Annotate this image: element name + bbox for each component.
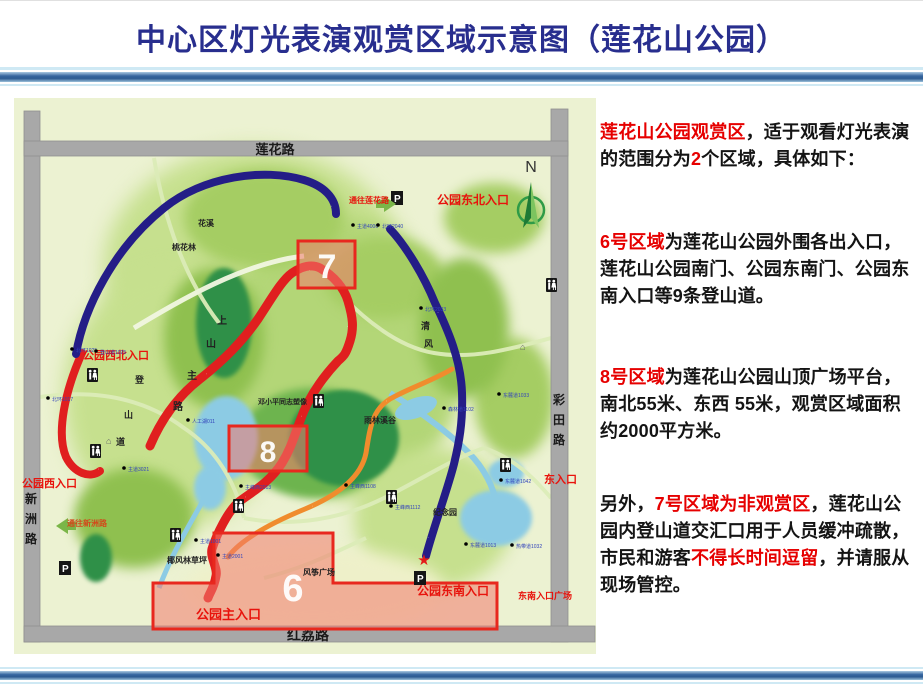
svg-text:人工湖011: 人工湖011 <box>192 418 215 425</box>
to-lianhua-road-label: 通往莲花路 <box>349 195 390 205</box>
coconut-lawn-label: 椰风林草坪 <box>167 555 207 565</box>
svg-text:主道2001: 主道2001 <box>222 553 243 560</box>
road-lianhua <box>24 141 568 156</box>
pavilion-icon: ⌂ <box>520 342 525 352</box>
zone-7-label: 7 <box>318 248 337 286</box>
svg-text:主: 主 <box>187 369 197 382</box>
restroom-icon <box>233 499 244 513</box>
paragraph-overview: 莲花山公园观赏区，适于观看灯光表演的范围分为2个区域，具体如下： <box>600 119 916 173</box>
parking-icon: P <box>59 561 71 575</box>
svg-text:路: 路 <box>25 531 38 546</box>
svg-text:主峰西1112: 主峰西1112 <box>395 504 421 511</box>
huaxi-label: 花溪 <box>198 218 215 228</box>
svg-text:彩: 彩 <box>552 392 565 407</box>
pavilion-icon: ⌂ <box>106 436 111 446</box>
svg-text:北环1017: 北环1017 <box>52 396 73 403</box>
svg-text:主道3021: 主道3021 <box>128 466 149 473</box>
restroom-icon <box>386 490 397 504</box>
paragraph-zone-8: 8号区域为莲花山公园山顶广场平台，南北55米、东西 55米，观赏区域面积约200… <box>600 364 916 445</box>
divider-bottom-light2 <box>0 682 923 684</box>
road-xinzhou <box>24 111 40 642</box>
deng-statue-label: 邓小平同志塑像 <box>258 397 308 406</box>
svg-text:主道1001: 主道1001 <box>200 538 221 545</box>
zone-8-label: 8 <box>260 436 277 469</box>
divider-bottom-light <box>0 667 923 669</box>
restroom-icon <box>313 394 324 408</box>
highlight-zone-7-non-viewing: 7号区域为非观赏区 <box>655 494 811 514</box>
svg-text:主道4006: 主道4006 <box>357 223 378 230</box>
svg-text:东麓道1042: 东麓道1042 <box>505 478 531 485</box>
memorial-garden-label: 纪念园 <box>433 507 457 517</box>
entrance-southeast-plaza-label: 东南入口广场 <box>518 590 572 601</box>
restroom-icon <box>90 444 101 458</box>
page-title: 中心区灯光表演观赏区域示意图（莲花山公园） <box>0 15 923 59</box>
highlight-zone-count: 2 <box>691 149 701 169</box>
svg-text:田: 田 <box>553 413 565 427</box>
svg-text:P: P <box>62 564 69 575</box>
svg-text:山: 山 <box>206 337 216 350</box>
explanation-panel: 莲花山公园观赏区，适于观看灯光表演的范围分为2个区域，具体如下： 6号区域为莲花… <box>600 119 916 599</box>
svg-text:登山道1025: 登山道1025 <box>100 349 126 356</box>
highlight-zone-6: 6号区域 <box>600 232 665 252</box>
star-icon: ★ <box>417 552 430 569</box>
highlight-park-viewing-area: 莲花山公园观赏区 <box>600 122 746 142</box>
svg-text:路: 路 <box>553 432 566 447</box>
slide: 中心区灯光表演观赏区域示意图（莲花山公园） <box>0 0 923 700</box>
paragraph-zone-7: 另外，7号区域为非观赏区，莲花山公园内登山道交汇口用于人员缓冲疏散，市民和游客不… <box>600 491 916 599</box>
taohualin-label: 桃花林 <box>172 242 196 252</box>
restroom-icon <box>546 278 557 292</box>
divider-bottom-band <box>0 671 923 680</box>
svg-text:风: 风 <box>424 339 433 349</box>
svg-text:洲: 洲 <box>25 512 37 526</box>
entrance-east-label: 东入口 <box>544 472 577 486</box>
svg-text:清: 清 <box>421 320 430 331</box>
road-caitian <box>551 109 568 642</box>
svg-text:主峰西2013: 主峰西2013 <box>245 484 271 491</box>
svg-text:东麓道1033: 东麓道1033 <box>503 392 529 399</box>
divider-top-band <box>0 72 923 82</box>
restroom-icon <box>500 458 511 472</box>
divider-top-light2 <box>0 84 923 86</box>
parking-icon: P <box>414 571 426 585</box>
svg-text:东麓道1013: 东麓道1013 <box>470 542 496 549</box>
entrance-west-label: 公园西入口 <box>22 477 77 490</box>
svg-text:P: P <box>394 194 401 205</box>
entrance-northeast-label: 公园东北入口 <box>437 192 509 207</box>
svg-text:新: 新 <box>25 491 37 506</box>
road-label-caitian: 彩 田 路 <box>552 392 566 447</box>
svg-text:森林道1102: 森林道1102 <box>448 406 474 413</box>
svg-text:主峰西1108: 主峰西1108 <box>350 483 376 490</box>
svg-text:北环2040: 北环2040 <box>382 223 403 230</box>
svg-text:上: 上 <box>217 314 227 327</box>
road-label-lianhua: 莲花路 <box>255 142 295 157</box>
kite-plaza-label: 风筝广场 <box>303 567 335 577</box>
park-map: 莲花路 红荔路 新 洲 路 彩 田 路 <box>14 98 596 654</box>
svg-text:山: 山 <box>124 409 133 420</box>
svg-text:登: 登 <box>134 374 145 385</box>
zone-6-label: 6 <box>282 568 303 610</box>
highlight-no-lingering: 不得长时间逗留 <box>691 548 818 568</box>
svg-text:热带道1032: 热带道1032 <box>516 543 542 550</box>
restroom-icon <box>170 528 181 542</box>
highlight-zone-8: 8号区域 <box>600 367 665 387</box>
divider-top-light <box>0 67 923 70</box>
compass-n-label: N <box>525 159 537 176</box>
restroom-icon <box>87 368 98 382</box>
svg-text:北环1025: 北环1025 <box>76 347 97 354</box>
svg-text:路: 路 <box>173 400 184 413</box>
road-label-xinzhou: 新 洲 路 <box>25 491 38 546</box>
to-xinzhou-road-label: 通往新洲路 <box>67 518 108 528</box>
svg-text:道: 道 <box>116 436 125 447</box>
park-map-svg: 莲花路 红荔路 新 洲 路 彩 田 路 <box>14 98 596 654</box>
paragraph-zone-6: 6号区域为莲花山公园外围各出入口，莲花山公园南门、公园东南门、公园东南入口等9条… <box>600 229 916 310</box>
rainforest-valley-label: 雨林溪谷 <box>364 415 397 425</box>
entrance-southeast-label: 公园东南入口 <box>417 583 489 598</box>
svg-text:北环2033: 北环2033 <box>425 306 446 313</box>
entrance-main-label: 公园主入口 <box>196 607 261 622</box>
